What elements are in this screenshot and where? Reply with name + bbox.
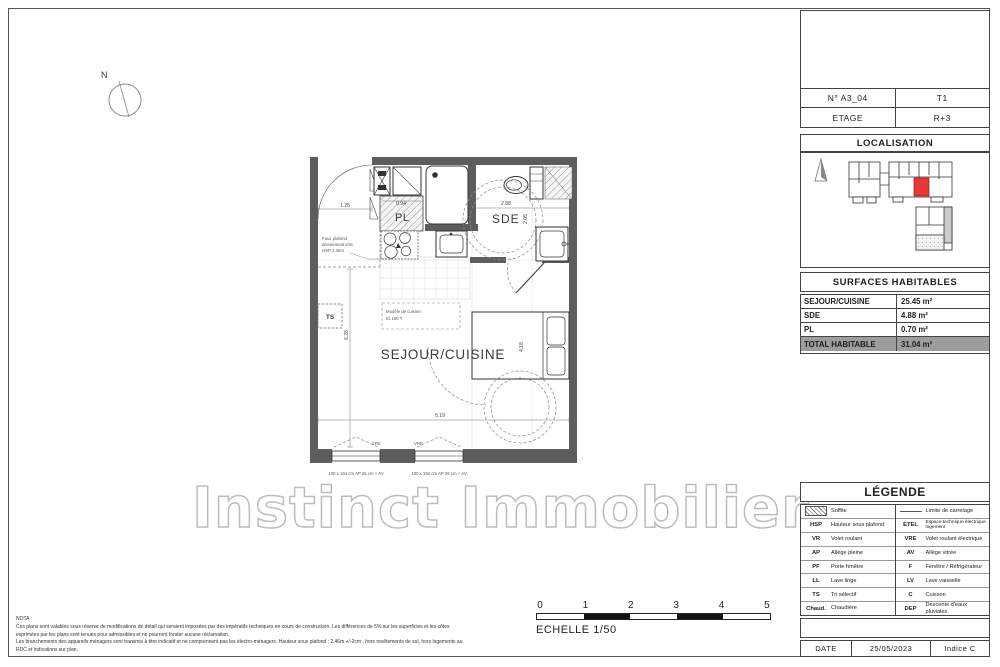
svg-text:dévoiement vmc: dévoiement vmc xyxy=(322,242,354,247)
north-label: N xyxy=(101,70,108,80)
localisation-title: LOCALISATION xyxy=(800,134,990,152)
legend-row: AP Allège pleine xyxy=(801,547,895,561)
floor-value: R+3 xyxy=(895,108,990,127)
svg-text:6.28: 6.28 xyxy=(344,330,350,340)
indice-value: Indice C xyxy=(930,641,989,656)
kitchen-model-line2: tcl 180 T xyxy=(386,316,403,321)
svg-text:2.05: 2.05 xyxy=(523,214,529,224)
legend-row: LV Lave vaisselle xyxy=(896,574,990,588)
floor-plan: TS Modèle de cuisine: tcl 180 T Faux pla… xyxy=(310,157,577,482)
legend-row: AV Allège vitrée xyxy=(896,547,990,561)
legend-row: F Fenêtre / Réfrigérateur xyxy=(896,561,990,575)
svg-text:HSP 2.30m: HSP 2.30m xyxy=(322,248,344,253)
surface-row: SDE 4.88 m² xyxy=(801,309,989,323)
scale-bar: 0 1 2 3 4 5 ECHELLE 1/50 xyxy=(536,600,771,636)
legend-row: Limite de carrelage xyxy=(896,505,990,519)
window-spec-1: 100 x 194 cm AP 26 cm + AV xyxy=(328,471,384,476)
shower-tray xyxy=(426,166,468,224)
sde-room-label: SDE xyxy=(492,212,520,226)
legend-row: C Cuisson xyxy=(896,588,990,602)
surfaces-title: SURFACES HABITABLES xyxy=(800,272,990,292)
svg-text:Faux plafond: Faux plafond xyxy=(322,236,347,241)
sde-door xyxy=(507,263,544,293)
vre-label-1: VRE xyxy=(372,441,381,446)
scale-ticks: 0 1 2 3 4 5 xyxy=(536,600,771,611)
kitchen-sink xyxy=(436,231,467,257)
soffite-swatch xyxy=(805,506,827,516)
legend-row: LL Lave linge xyxy=(801,574,895,588)
surface-row: PL 0.70 m² xyxy=(801,323,989,337)
svg-text:4.18: 4.18 xyxy=(519,342,525,352)
corridor xyxy=(880,173,889,185)
soffite-area xyxy=(545,167,572,199)
highlighted-unit xyxy=(914,178,929,196)
legend-row: HSP Hauteur sous plafond xyxy=(801,519,895,533)
carrelage-line-swatch xyxy=(900,511,922,512)
pl-room-label: PL xyxy=(395,212,409,224)
localisation-map xyxy=(800,152,990,268)
cooktop xyxy=(381,231,418,259)
water-heater xyxy=(530,167,543,199)
legend-row: Chaud. Chaudière xyxy=(801,602,895,615)
unit-number: N° A3_04 xyxy=(801,89,895,107)
north-arrow-icon: N xyxy=(96,66,148,124)
map-north-icon xyxy=(815,159,827,181)
legend-row: ETEL Espace technique électrique logemen… xyxy=(896,519,990,533)
legend-row: Soffite xyxy=(801,505,895,519)
date-row: DATE 25/05/2023 Indice C xyxy=(800,640,990,657)
nota-text: NOTA : Ces plans sont valables sous rése… xyxy=(16,616,508,655)
title-block: N° A3_04 T1 ETAGE R+3 LOCALISATION xyxy=(800,10,990,657)
building-bottom xyxy=(916,207,952,250)
washer-space xyxy=(393,167,421,195)
date-value: 25/05/2023 xyxy=(851,641,930,656)
legend-left-column: Soffite HSP Hauteur sous plafond VR Vole… xyxy=(801,505,895,615)
window-spec-2: 100 x 194 cm AP 26 cm + AV xyxy=(411,471,467,476)
svg-text:5.19: 5.19 xyxy=(435,413,445,419)
title-block-header: N° A3_04 T1 ETAGE R+3 xyxy=(800,10,990,128)
floor-label: ETAGE xyxy=(801,108,895,127)
legend-row: TS Tri sélectif xyxy=(801,588,895,602)
svg-text:2.88: 2.88 xyxy=(501,201,511,207)
footer-logo-area xyxy=(800,618,990,638)
scale-bar-segments xyxy=(536,613,771,620)
legend-row: DEP Descente d'eaux pluviales xyxy=(896,602,990,615)
svg-text:1.25: 1.25 xyxy=(340,203,350,209)
legend-row: VRE Volet roulant électrique xyxy=(896,533,990,547)
surface-row: SEJOUR/CUISINE 25.45 m² xyxy=(801,295,989,309)
plan-sheet: N xyxy=(0,0,1000,667)
date-label: DATE xyxy=(801,641,851,656)
legend-row: PF Porte fenêtre xyxy=(801,561,895,575)
building-left xyxy=(849,162,880,203)
legend-row: VR Volet roulant xyxy=(801,533,895,547)
toilet xyxy=(504,177,528,194)
vre-label-2: VRE xyxy=(414,441,423,446)
logo-area xyxy=(801,11,989,89)
tile-grid xyxy=(380,257,470,299)
legend: Soffite HSP Hauteur sous plafond VR Vole… xyxy=(800,504,990,616)
electric-cabinet xyxy=(374,167,390,195)
scale-label: ECHELLE 1/50 xyxy=(536,624,771,636)
entry-door-arc xyxy=(318,165,372,219)
surface-total-row: TOTAL HABITABLE 31.04 m² xyxy=(801,337,989,351)
svg-text:0.94: 0.94 xyxy=(396,201,406,207)
ts-label: TS xyxy=(326,314,335,321)
kitchen-model-line1: Modèle de cuisine: xyxy=(386,309,422,314)
kitchen-model-note: Modèle de cuisine: tcl 180 T xyxy=(382,303,460,329)
ts-box: TS xyxy=(318,304,342,328)
unit-type: T1 xyxy=(895,89,990,107)
legend-right-column: Limite de carrelage ETEL Espace techniqu… xyxy=(895,505,990,615)
legend-title: LÉGENDE xyxy=(800,482,990,502)
surfaces-table: SEJOUR/CUISINE 25.45 m² SDE 4.88 m² PL 0… xyxy=(800,294,990,354)
sejour-room-label: SEJOUR/CUISINE xyxy=(381,347,505,362)
faux-plafond-note: Faux plafond dévoiement vmc HSP 2.30m xyxy=(322,236,384,259)
